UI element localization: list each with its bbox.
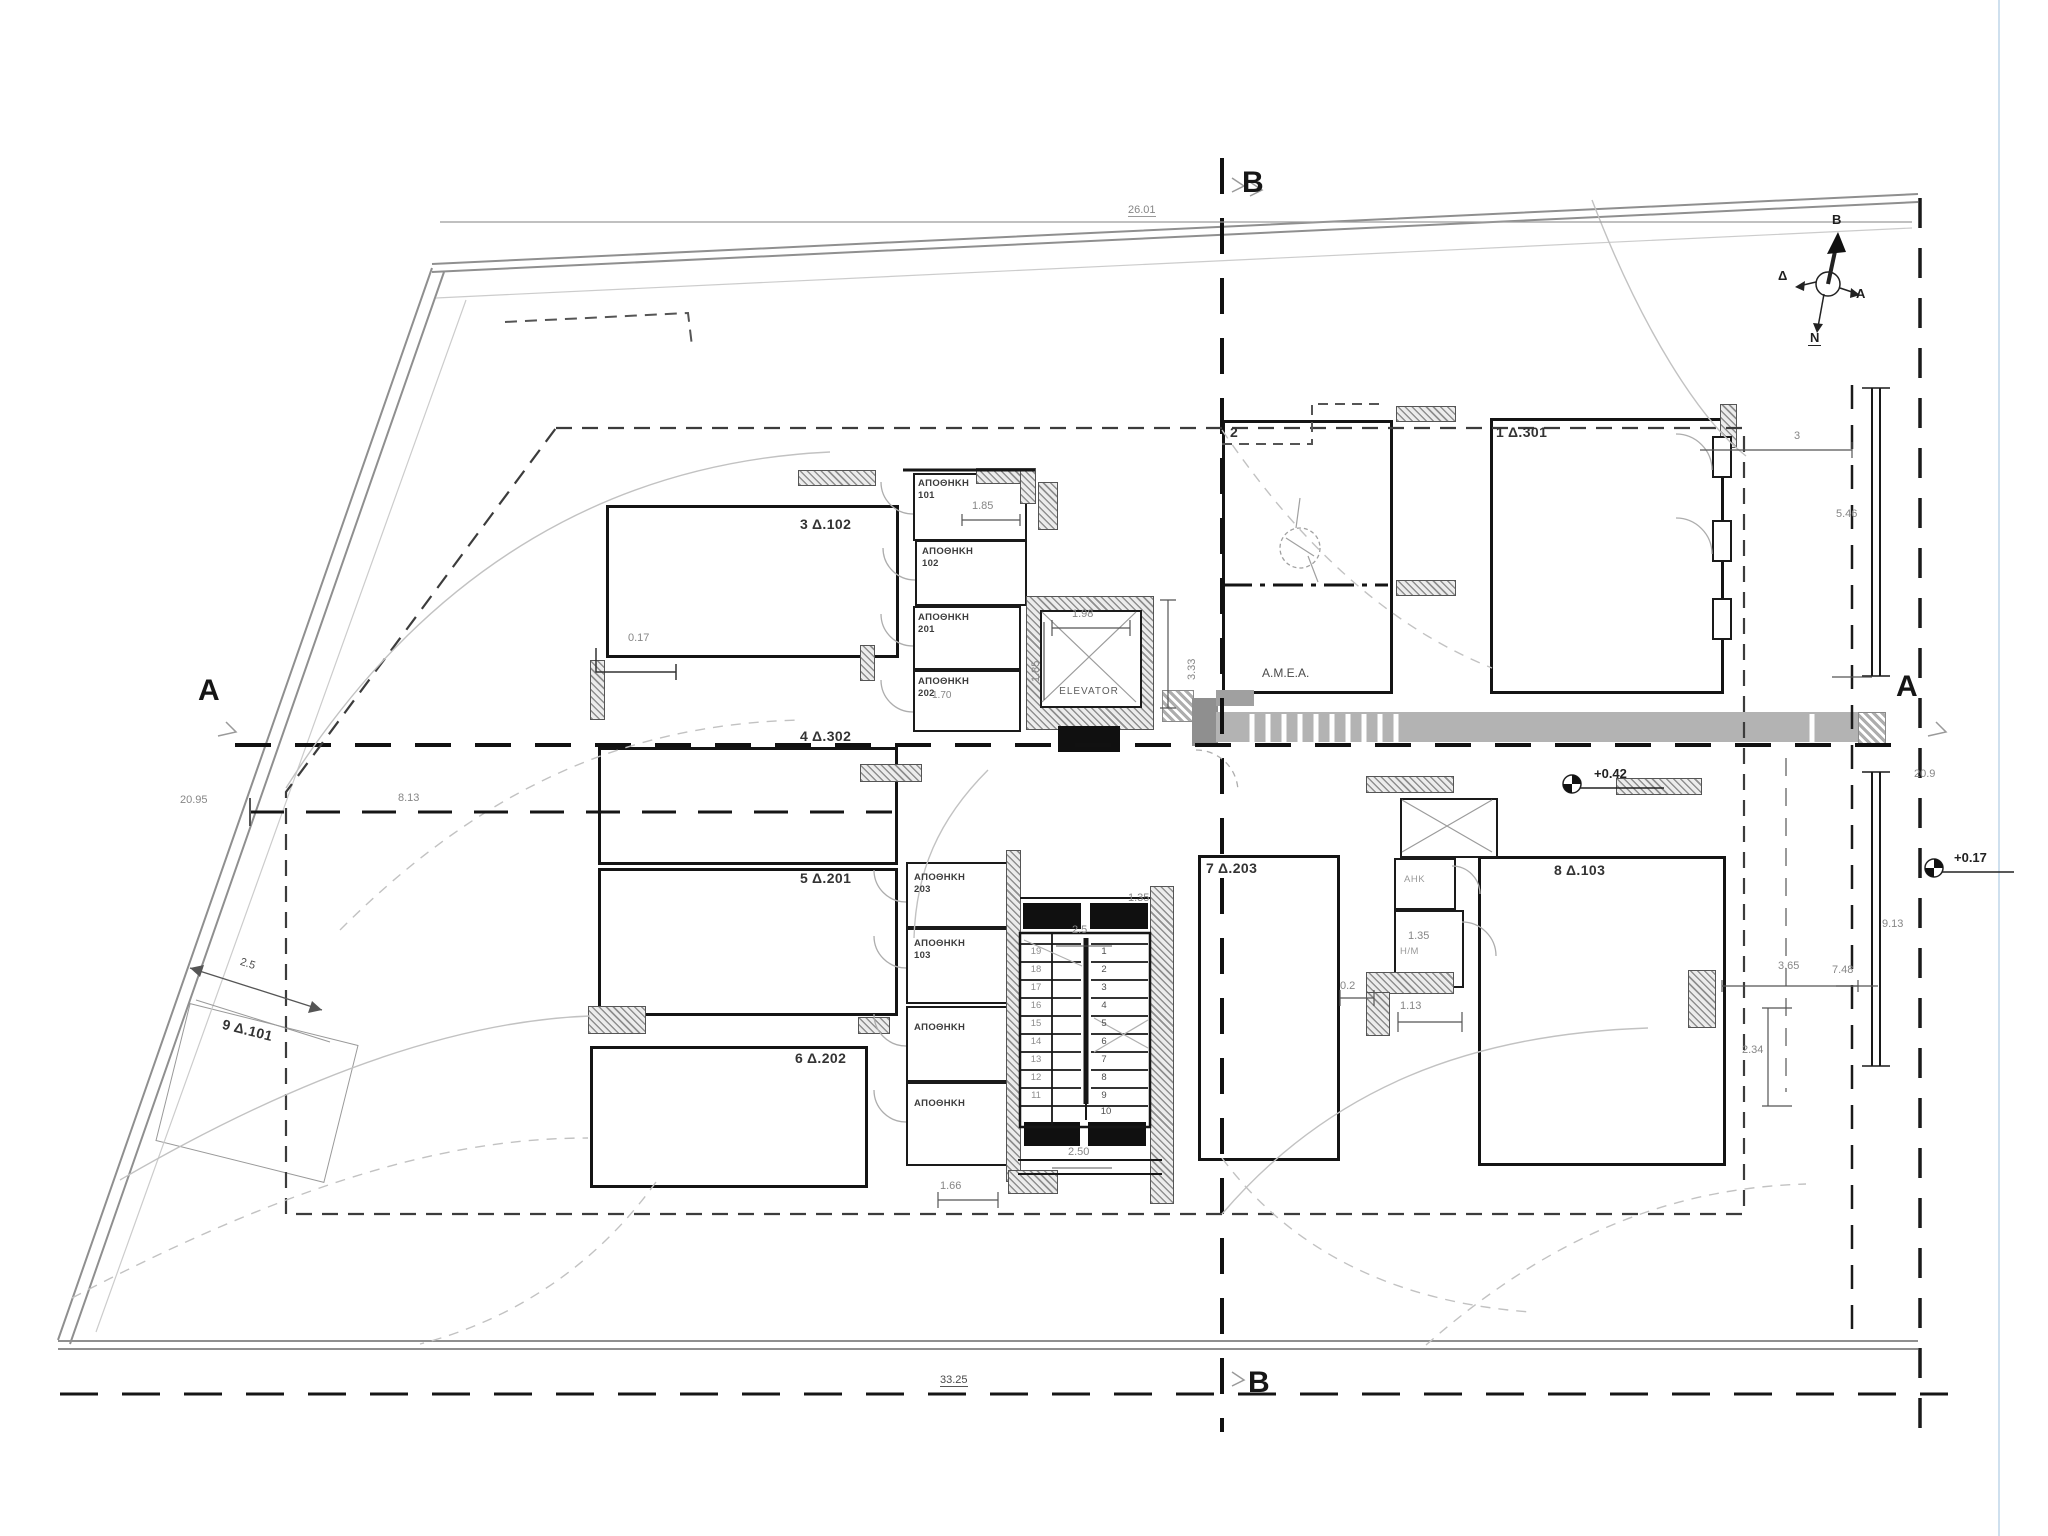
parking-label-1: 1 Δ.301 — [1496, 424, 1547, 440]
amea-label: Α.Μ.Ε.Α. — [1262, 666, 1309, 680]
elevator-label: ELEVATOR — [1044, 686, 1134, 697]
storage-num: 101 — [918, 490, 969, 502]
ramp-stripes — [1252, 714, 1812, 742]
plot-boundary — [58, 194, 1918, 1349]
stair-number: 8 — [1094, 1072, 1114, 1083]
parking-label-7: 7 Δ.203 — [1206, 860, 1257, 876]
storage-name: ΑΠΟΘΗΚΗ — [918, 478, 969, 490]
section-label-a-left: A — [198, 676, 220, 706]
dim-left-b: 8.13 — [398, 792, 419, 804]
storage-name: ΑΠΟΘΗΚΗ — [918, 612, 969, 624]
storage-label-201: ΑΠΟΘΗΚΗ201 — [918, 612, 969, 637]
parking-label-8: 8 Δ.103 — [1554, 862, 1605, 878]
storage-name: ΑΠΟΘΗΚΗ — [914, 872, 965, 884]
stair-number: 12 — [1026, 1072, 1046, 1083]
storage-label-b: ΑΠΟΘΗΚΗ — [914, 1098, 965, 1110]
storage-name: ΑΠΟΘΗΚΗ — [922, 546, 973, 558]
dim-elevator-width: 1.98 — [1072, 608, 1093, 620]
dim-util-135: 1.35 — [1408, 930, 1429, 942]
dim-right-upper: 5.46 — [1836, 508, 1857, 520]
parking-label-3: 3 Δ.102 — [800, 516, 851, 532]
stair-number: 19 — [1026, 946, 1046, 957]
storage-label-102: ΑΠΟΘΗΚΗ102 — [922, 546, 973, 571]
storage-num: 102 — [922, 558, 973, 570]
section-label-b-top: B — [1242, 168, 1264, 198]
storage-label-203: ΑΠΟΘΗΚΗ203 — [914, 872, 965, 897]
stair-number: 14 — [1026, 1036, 1046, 1047]
stair-number: 7 — [1094, 1054, 1114, 1065]
parking-label-4: 4 Δ.302 — [800, 728, 851, 744]
parking-label-2: 2 — [1230, 424, 1238, 440]
storage-num: 201 — [918, 624, 969, 636]
stair-number: 3 — [1094, 982, 1114, 993]
parking-label-6: 6 Δ.202 — [795, 1050, 846, 1066]
compass-east-label: A — [1856, 286, 1865, 301]
dim-bottom-width: 33.25 — [940, 1374, 968, 1387]
compass-north-label: B — [1832, 212, 1841, 227]
dim-stair-top2: 1.35 — [1128, 892, 1149, 904]
stair-number: 17 — [1026, 982, 1046, 993]
dim-lobby-170: 1.70 — [932, 690, 951, 701]
storage-label-103: ΑΠΟΘΗΚΗ103 — [914, 938, 965, 963]
stair-lines — [903, 470, 1162, 1174]
stair-number: 4 — [1094, 1000, 1114, 1011]
level-marker-symbols — [1563, 775, 2014, 877]
stair-number: 1 — [1094, 946, 1114, 957]
dim-right-small: 7.48 — [1832, 964, 1853, 976]
stair-number: 2 — [1094, 964, 1114, 975]
dim-util-02: 0.2 — [1340, 980, 1355, 992]
tree-symbol — [1280, 498, 1320, 582]
stair-number: 15 — [1026, 1018, 1046, 1029]
dim-234: 2.34 — [1742, 1044, 1763, 1056]
dim-stair-top: 2.5 — [1072, 924, 1087, 936]
utility-label-ahk: ΑΗΚ — [1404, 874, 1425, 885]
dim-right-top: 3 — [1794, 430, 1800, 442]
dim-corner-017: 0.17 — [628, 632, 649, 644]
parking-label-5: 5 Δ.201 — [800, 870, 851, 886]
building-envelope-dashed — [286, 313, 1744, 1214]
dimension-lines — [60, 222, 1948, 1394]
stair-number: 13 — [1026, 1054, 1046, 1065]
section-label-a-right: A — [1896, 672, 1918, 702]
compass-icon — [1795, 232, 1860, 333]
dim-365: 3.65 — [1778, 960, 1799, 972]
door-swing-arcs — [874, 434, 1712, 1122]
dim-elevator-depth: 1.85 — [1030, 661, 1042, 682]
compass-south-label: N — [1808, 330, 1821, 346]
dim-top-width: 26.01 — [1128, 204, 1156, 217]
floor-plan-sheet: B B A A B Δ A N 3 Δ.102 4 Δ.302 5 Δ.201 … — [0, 0, 2048, 1536]
dim-right-mid: 20.9 — [1914, 768, 1935, 780]
dim-storage101: 1.85 — [972, 500, 993, 512]
storage-name: ΑΠΟΘΗΚΗ — [914, 1022, 965, 1034]
storage-num: 203 — [914, 884, 965, 896]
storage-name: ΑΠΟΘΗΚΗ — [914, 938, 965, 950]
level-marker-017: +0.17 — [1954, 850, 1987, 865]
dim-elevator-side: 3.33 — [1186, 659, 1198, 680]
stair-number: 10 — [1096, 1106, 1116, 1117]
dim-right-lower: 9.13 — [1882, 918, 1903, 930]
level-marker-042: +0.42 — [1594, 766, 1627, 781]
section-label-b-bottom: B — [1248, 1368, 1270, 1398]
storage-name: ΑΠΟΘΗΚΗ — [914, 1098, 965, 1110]
storage-name: ΑΠΟΘΗΚΗ — [918, 676, 969, 688]
storage-num: 103 — [914, 950, 965, 962]
stair-number: 5 — [1094, 1018, 1114, 1029]
stair-number: 9 — [1094, 1090, 1114, 1101]
plan-linework — [0, 0, 2048, 1536]
stair-number: 18 — [1026, 964, 1046, 975]
dim-left-a: 20.95 — [180, 794, 208, 806]
stair-number: 16 — [1026, 1000, 1046, 1011]
stair-number: 11 — [1026, 1090, 1046, 1101]
dim-storage-bottom: 1.66 — [940, 1180, 961, 1192]
stair-number: 6 — [1094, 1036, 1114, 1047]
dim-stair-bottom: 2.50 — [1068, 1146, 1089, 1158]
storage-label-101: ΑΠΟΘΗΚΗ101 — [918, 478, 969, 503]
storage-label-a: ΑΠΟΘΗΚΗ — [914, 1022, 965, 1034]
utility-label-hm: Η/Μ — [1400, 946, 1419, 957]
dim-util-113: 1.13 — [1400, 1000, 1421, 1012]
compass-west-label: Δ — [1778, 268, 1787, 283]
section-arrow-marks — [218, 178, 1946, 1386]
driveway-arcs — [72, 200, 1806, 1345]
right-reference-lines — [1786, 198, 1920, 1430]
section-lines — [235, 158, 1908, 1432]
